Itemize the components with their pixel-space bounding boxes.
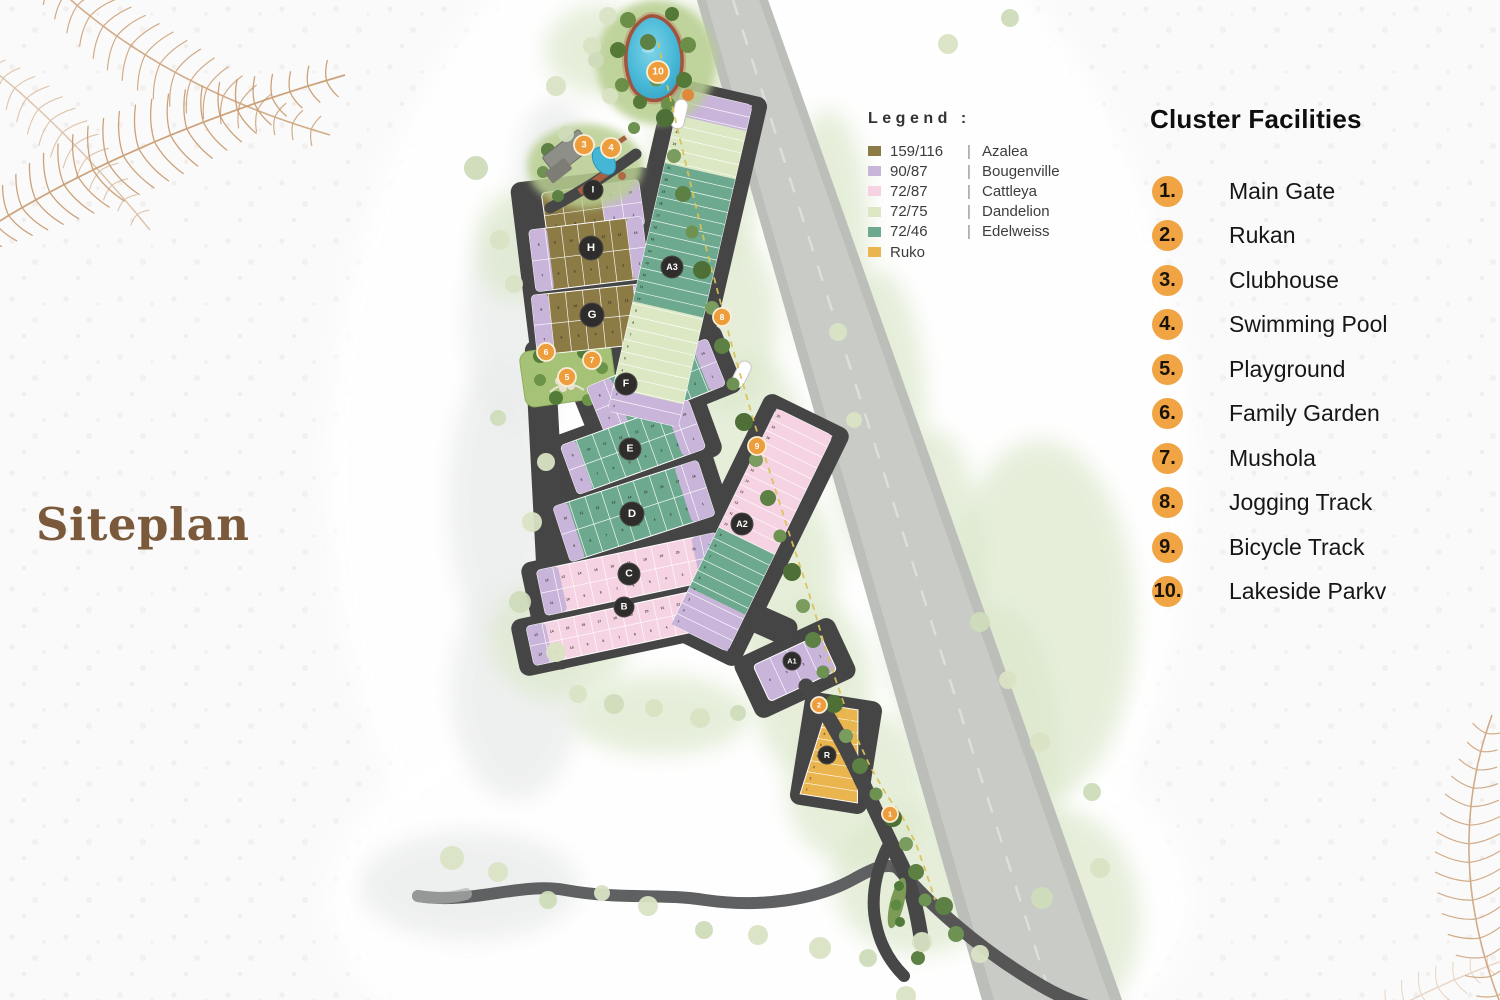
map-badge-6: 6	[537, 343, 555, 361]
block-label-D: D	[620, 502, 644, 526]
svg-text:12: 12	[607, 300, 611, 304]
legend: Legend : 159/116|Azalea90/87|Bougenville…	[868, 110, 1098, 262]
svg-text:2: 2	[817, 701, 821, 710]
svg-text:R: R	[824, 750, 830, 760]
facility-number-badge: 4.	[1152, 309, 1183, 340]
map-badge-7: 7	[583, 351, 601, 369]
legend-size: Ruko	[890, 244, 956, 261]
legend-size: 72/46	[890, 223, 956, 240]
facilities-list: 1.Main Gate2.Rukan3.Clubhouse4.Swimming …	[1150, 169, 1490, 614]
facility-label: Swimming Pool	[1229, 311, 1388, 338]
map-badge-3: 3	[574, 135, 594, 155]
svg-text:12: 12	[601, 235, 605, 239]
legend-swatch	[868, 166, 881, 176]
legend-item-azalea: 159/116|Azalea	[868, 141, 1098, 161]
block-label-E: E	[619, 438, 641, 460]
map-badge-10: 10	[647, 61, 669, 83]
legend-name: Azalea	[982, 143, 1028, 160]
svg-text:F: F	[623, 379, 629, 390]
legend-item-edelweiss: 72/46|Edelweiss	[868, 222, 1098, 242]
facility-number-badge: 10.	[1152, 576, 1183, 607]
block-label-F: F	[615, 373, 637, 395]
map-badge-5: 5	[558, 368, 576, 386]
facility-number-badge: 5.	[1152, 354, 1183, 385]
svg-text:A1: A1	[787, 657, 796, 666]
facility-item-rukan: 2.Rukan	[1150, 214, 1490, 259]
facility-item-lakeside-parkv: 10.Lakeside Parkv	[1150, 570, 1490, 615]
svg-text:3: 3	[581, 140, 586, 151]
legend-swatch	[868, 186, 881, 196]
facility-label: Bicycle Track	[1229, 534, 1364, 561]
svg-text:G: G	[588, 309, 597, 321]
block-label-B: B	[614, 597, 634, 617]
facility-item-playground: 5.Playground	[1150, 347, 1490, 392]
block-label-I: I	[583, 180, 603, 200]
legend-heading: Legend :	[868, 110, 1098, 128]
block-label-R: R	[818, 746, 836, 764]
legend-separator: |	[956, 183, 982, 200]
legend-name: Cattleya	[982, 183, 1037, 200]
facility-item-main-gate: 1.Main Gate	[1150, 169, 1490, 214]
facilities-heading: Cluster Facilities	[1150, 104, 1490, 135]
legend-item-cattleya: 72/87|Cattleya	[868, 181, 1098, 201]
facility-label: Jogging Track	[1229, 489, 1372, 516]
block-label-A3: A3	[661, 256, 683, 278]
facility-label: Mushola	[1229, 445, 1316, 472]
svg-text:A2: A2	[736, 519, 748, 529]
facility-item-clubhouse: 3.Clubhouse	[1150, 258, 1490, 303]
map-badge-9: 9	[748, 437, 766, 455]
legend-size: 159/116	[890, 143, 956, 160]
map-badge-1: 1	[882, 806, 898, 822]
facility-number-badge: 1.	[1152, 176, 1183, 207]
block-label-C: C	[618, 563, 640, 585]
facility-label: Rukan	[1229, 222, 1295, 249]
svg-text:C: C	[625, 569, 633, 580]
legend-separator: |	[956, 163, 982, 180]
palm-frond	[1435, 715, 1500, 1000]
legend-name: Edelweiss	[982, 223, 1050, 240]
svg-text:10: 10	[573, 304, 577, 308]
svg-text:A3: A3	[666, 262, 678, 272]
svg-text:H: H	[587, 242, 595, 254]
facility-item-swimming-pool: 4.Swimming Pool	[1150, 303, 1490, 348]
facility-label: Lakeside Parkv	[1229, 578, 1386, 605]
lake-gazebo	[682, 89, 694, 101]
svg-text:4: 4	[608, 143, 614, 154]
legend-size: 90/87	[890, 163, 956, 180]
legend-name: Dandelion	[982, 203, 1050, 220]
svg-text:8: 8	[720, 312, 725, 322]
facility-label: Main Gate	[1229, 178, 1335, 205]
legend-item-ruko: Ruko	[868, 242, 1098, 262]
legend-size: 72/75	[890, 203, 956, 220]
block-label-H: H	[579, 236, 603, 260]
facility-item-jogging-track: 8.Jogging Track	[1150, 481, 1490, 526]
svg-text:9: 9	[755, 441, 760, 451]
facility-number-badge: 2.	[1152, 220, 1183, 251]
facility-label: Clubhouse	[1229, 267, 1339, 294]
svg-text:14: 14	[634, 231, 638, 235]
page-title: Siteplan	[36, 498, 249, 551]
svg-text:10: 10	[569, 239, 573, 243]
cluster-facilities: Cluster Facilities 1.Main Gate2.Rukan3.C…	[1150, 104, 1490, 614]
facility-label: Family Garden	[1229, 400, 1380, 427]
svg-text:I: I	[592, 185, 595, 196]
legend-swatch	[868, 247, 881, 257]
svg-text:10: 10	[652, 67, 664, 78]
block-label-G: G	[580, 303, 604, 327]
legend-swatch	[868, 207, 881, 217]
legend-swatch	[868, 146, 881, 156]
legend-rows: 159/116|Azalea90/87|Bougenville72/87|Cat…	[868, 141, 1098, 262]
facility-item-bicycle-track: 9.Bicycle Track	[1150, 525, 1490, 570]
svg-text:13: 13	[624, 298, 628, 302]
block-label-A1: A1	[783, 652, 801, 670]
facility-number-badge: 3.	[1152, 265, 1183, 296]
block-label-A2: A2	[731, 513, 753, 535]
facility-number-badge: 7.	[1152, 443, 1183, 474]
map-badge-8: 8	[713, 308, 731, 326]
legend-item-bougenville: 90/87|Bougenville	[868, 161, 1098, 181]
facility-label: Playground	[1229, 356, 1345, 383]
facility-item-mushola: 7.Mushola	[1150, 436, 1490, 481]
svg-text:5: 5	[565, 372, 570, 382]
legend-separator: |	[956, 143, 982, 160]
svg-text:E: E	[627, 444, 634, 455]
facility-number-badge: 6.	[1152, 398, 1183, 429]
svg-text:D: D	[628, 508, 636, 520]
svg-text:B: B	[621, 602, 628, 613]
facility-item-family-garden: 6.Family Garden	[1150, 392, 1490, 437]
svg-text:7: 7	[590, 355, 595, 365]
map-badge-4: 4	[601, 138, 621, 158]
facility-number-badge: 9.	[1152, 532, 1183, 563]
legend-separator: |	[956, 223, 982, 240]
legend-name: Bougenville	[982, 163, 1060, 180]
legend-separator: |	[956, 203, 982, 220]
legend-item-dandelion: 72/75|Dandelion	[868, 202, 1098, 222]
palm-frond	[30, 0, 330, 146]
svg-text:13: 13	[617, 233, 621, 237]
svg-text:6: 6	[544, 347, 549, 357]
facility-number-badge: 8.	[1152, 487, 1183, 518]
palm-frond	[0, 60, 150, 230]
map-badge-2: 2	[811, 697, 827, 713]
legend-size: 72/87	[890, 183, 956, 200]
legend-swatch	[868, 227, 881, 237]
